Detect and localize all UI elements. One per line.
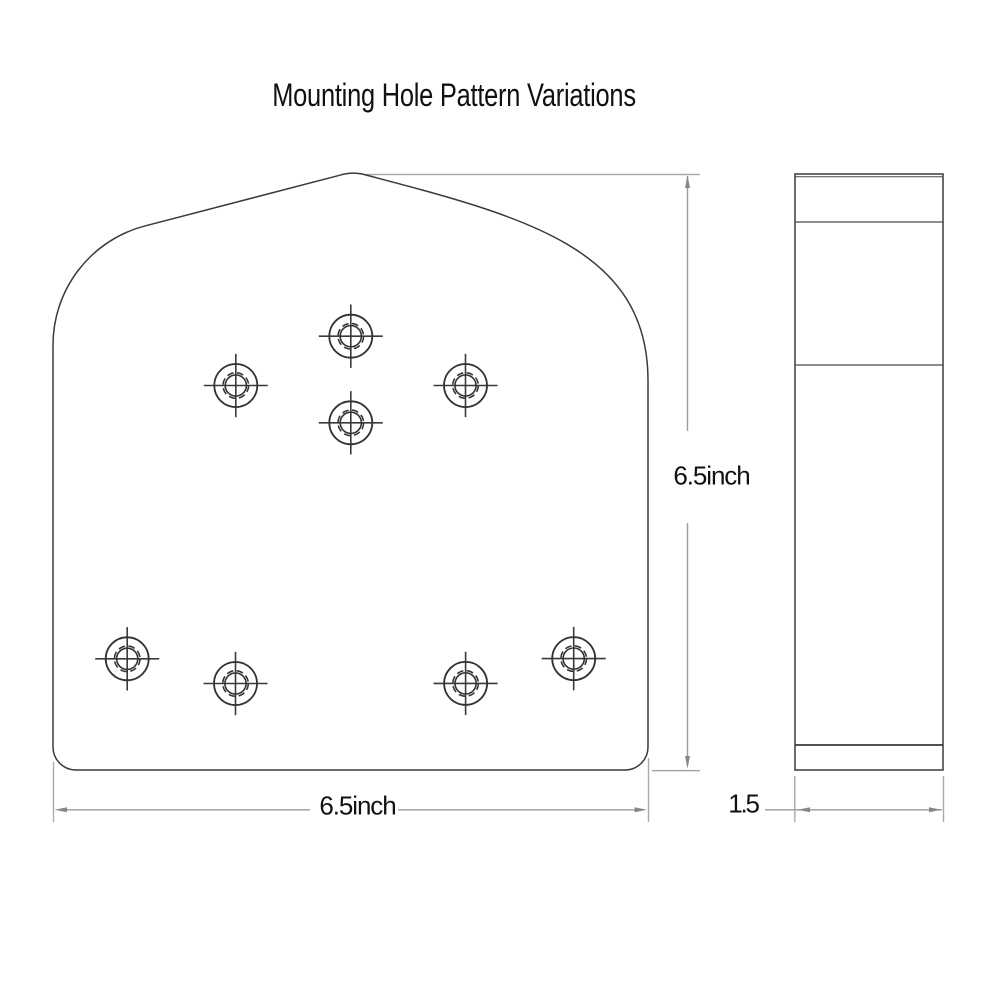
svg-text:6.5inch: 6.5inch [673, 460, 749, 490]
svg-text:6.5inch: 6.5inch [319, 790, 395, 820]
svg-text:Mounting Hole Pattern Variatio: Mounting Hole Pattern Variations [272, 78, 636, 113]
svg-text:1.5: 1.5 [728, 788, 759, 818]
